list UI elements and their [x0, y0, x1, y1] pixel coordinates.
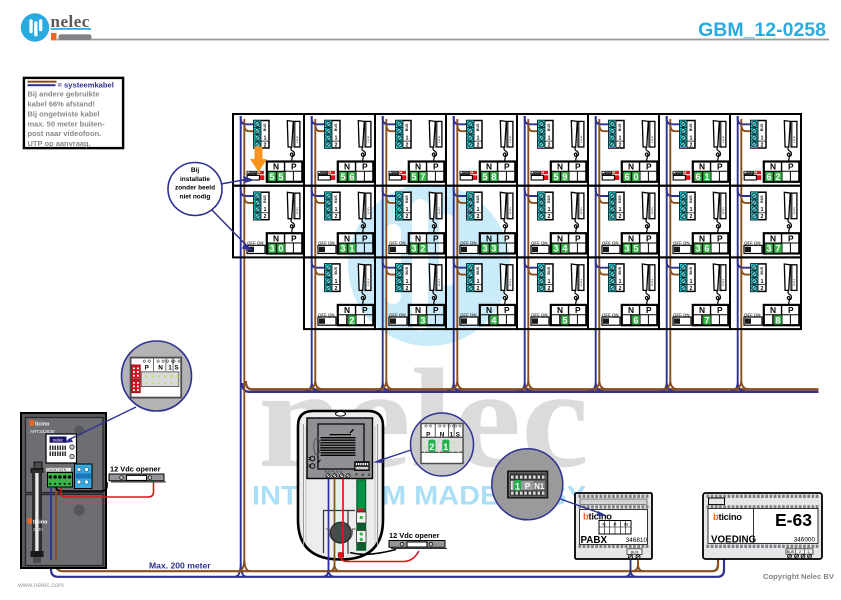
- svg-text:TX/CN TX/TN: TX/CN TX/TN: [47, 468, 67, 472]
- svg-text:5: 5: [278, 172, 283, 182]
- svg-text:ticino: ticino: [33, 519, 48, 525]
- svg-text:3: 3: [482, 244, 487, 254]
- svg-text:N1: N1: [534, 482, 545, 491]
- svg-text:7: 7: [704, 315, 709, 325]
- svg-text:4: 4: [562, 244, 567, 254]
- svg-text:3: 3: [553, 244, 558, 254]
- svg-text:3: 3: [411, 244, 416, 254]
- svg-text:P: P: [145, 364, 150, 371]
- svg-text:3: 3: [766, 244, 771, 254]
- svg-text:BUS: BUS: [787, 550, 795, 554]
- svg-text:www.nelec.com: www.nelec.com: [17, 582, 64, 589]
- svg-text:9: 9: [562, 172, 567, 182]
- svg-text:5: 5: [553, 172, 558, 182]
- svg-text:1: 1: [168, 364, 172, 371]
- svg-text:3: 3: [269, 244, 274, 254]
- svg-text:E-63: E-63: [775, 510, 812, 530]
- svg-text:P: P: [614, 522, 617, 527]
- svg-text:3: 3: [624, 244, 629, 254]
- svg-text:3: 3: [340, 244, 345, 254]
- svg-text:UTP op aanvraag.: UTP op aanvraag.: [28, 139, 91, 148]
- svg-text:nelec: nelec: [51, 12, 90, 31]
- svg-text:0: 0: [633, 172, 638, 182]
- svg-text:4: 4: [491, 315, 496, 325]
- svg-text:2: 2: [775, 172, 780, 182]
- svg-text:GBM_12-0258: GBM_12-0258: [698, 19, 826, 41]
- svg-text:0: 0: [278, 244, 283, 254]
- svg-text:ticino: ticino: [589, 511, 613, 522]
- svg-text:Bij: Bij: [191, 167, 200, 174]
- svg-text:3: 3: [491, 244, 496, 254]
- svg-text:N: N: [602, 522, 605, 527]
- svg-text:3: 3: [420, 315, 425, 325]
- svg-text:1: 1: [443, 442, 448, 452]
- svg-text:6: 6: [624, 172, 629, 182]
- svg-text:PABX: PABX: [581, 535, 608, 546]
- svg-text:5: 5: [340, 172, 345, 182]
- svg-text:P N S: P N S: [356, 473, 372, 477]
- svg-text:Bij ongetwiste kabel: Bij ongetwiste kabel: [28, 109, 100, 118]
- svg-text:1: 1: [704, 172, 709, 182]
- svg-text:6: 6: [704, 244, 709, 254]
- svg-text:8: 8: [491, 172, 496, 182]
- svg-text:BUS PL S+ S-: BUS PL S+ S-: [325, 469, 344, 473]
- svg-text:BUS: BUS: [631, 550, 639, 554]
- svg-text:P: P: [525, 481, 531, 491]
- svg-text:M: M: [624, 522, 628, 527]
- svg-text:Max. 200 meter: Max. 200 meter: [149, 561, 211, 571]
- svg-text:ART342630: ART342630: [30, 429, 55, 434]
- svg-text:2: 2: [420, 244, 425, 254]
- svg-text:12 Vdc opener: 12 Vdc opener: [389, 531, 440, 540]
- svg-text:5: 5: [633, 244, 638, 254]
- svg-text:nelec: nelec: [53, 437, 64, 442]
- svg-text:max. 50 meter buiten-: max. 50 meter buiten-: [28, 119, 106, 128]
- svg-text:2: 2: [429, 442, 434, 452]
- svg-text:7: 7: [775, 244, 780, 254]
- svg-text:installatie: installatie: [180, 176, 210, 183]
- svg-text:ticino: ticino: [35, 421, 50, 427]
- svg-text:12 Vdc opener: 12 Vdc opener: [110, 465, 161, 474]
- svg-text:post naar videofoon.: post naar videofoon.: [28, 129, 102, 138]
- svg-text:5: 5: [269, 172, 274, 182]
- svg-text:3: 3: [695, 244, 700, 254]
- svg-text:ticino: ticino: [719, 511, 743, 522]
- svg-text:zonder beeld: zonder beeld: [175, 185, 215, 192]
- svg-text:346000: 346000: [794, 537, 816, 544]
- svg-text:346810: 346810: [626, 537, 648, 544]
- svg-text:6: 6: [766, 172, 771, 182]
- svg-text:1: 1: [808, 550, 810, 554]
- svg-text:2: 2: [349, 315, 354, 325]
- svg-text:VOEDING: VOEDING: [711, 534, 757, 545]
- svg-text:S: S: [174, 364, 179, 371]
- svg-text:6: 6: [349, 172, 354, 182]
- svg-text:1: 1: [349, 244, 354, 254]
- svg-text:= systeemkabel: = systeemkabel: [58, 81, 114, 90]
- svg-text:Bij andere gebruikte: Bij andere gebruikte: [28, 90, 100, 99]
- svg-text:6: 6: [633, 315, 638, 325]
- svg-text:N: N: [158, 364, 163, 371]
- svg-text:1: 1: [515, 481, 520, 491]
- svg-text:7: 7: [420, 172, 425, 182]
- svg-text:5: 5: [562, 315, 567, 325]
- svg-text:Copyright Nelec BV: Copyright Nelec BV: [763, 572, 835, 581]
- svg-text:5: 5: [411, 172, 416, 182]
- svg-text:6: 6: [695, 172, 700, 182]
- svg-text:kabel 66% afstand!: kabel 66% afstand!: [28, 100, 96, 109]
- svg-text:5: 5: [482, 172, 487, 182]
- svg-text:8: 8: [775, 315, 780, 325]
- svg-text:niet nodig: niet nodig: [179, 193, 210, 200]
- svg-text:2: 2: [799, 550, 801, 554]
- svg-text:2630: 2630: [33, 527, 43, 532]
